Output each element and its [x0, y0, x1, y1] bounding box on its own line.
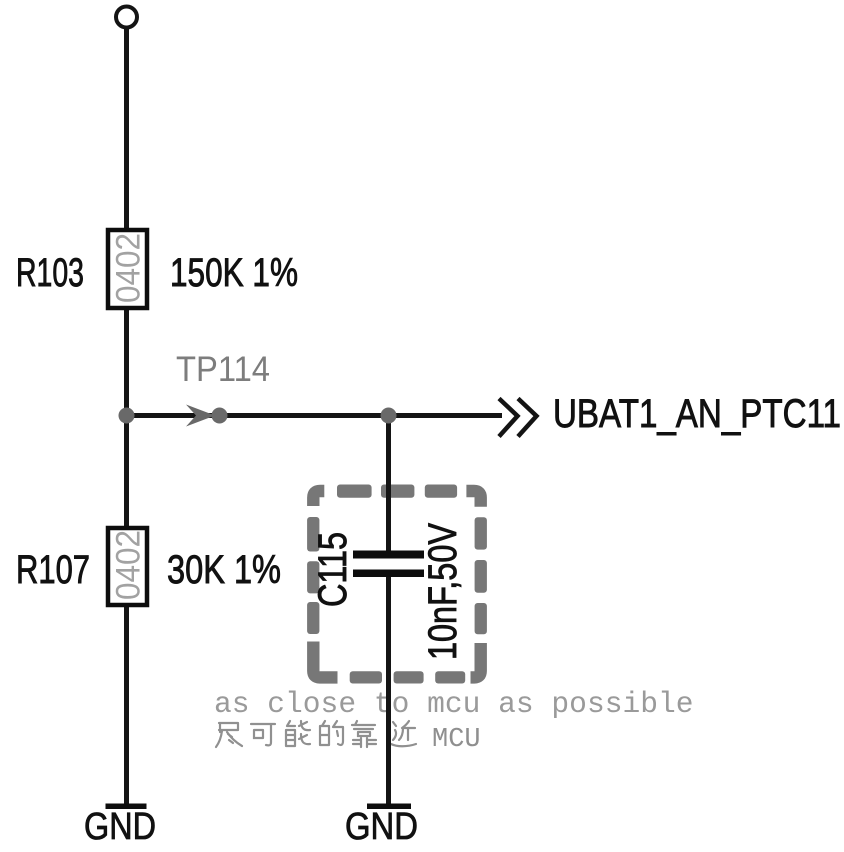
svg-text:UBAT1_AN_PTC11: UBAT1_AN_PTC11 — [553, 392, 841, 436]
svg-text:150K 1%: 150K 1% — [170, 251, 298, 295]
svg-text:as close to mcu as possible: as close to mcu as possible — [214, 687, 694, 721]
svg-text:0402: 0402 — [110, 530, 148, 600]
svg-text:30K 1%: 30K 1% — [167, 548, 281, 592]
svg-text:GND: GND — [345, 806, 418, 848]
svg-text:TP114: TP114 — [176, 350, 270, 389]
svg-text:10nF,50V: 10nF,50V — [421, 523, 465, 660]
svg-text:0402: 0402 — [110, 233, 148, 303]
svg-text:GND: GND — [84, 806, 156, 848]
svg-text:C115: C115 — [311, 532, 355, 607]
svg-text:MCU: MCU — [432, 725, 481, 755]
svg-text:R103: R103 — [16, 251, 84, 295]
svg-text:R107: R107 — [16, 548, 90, 592]
